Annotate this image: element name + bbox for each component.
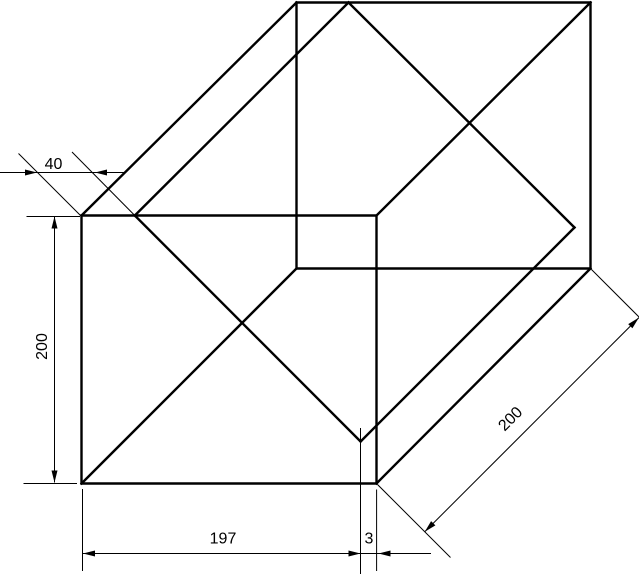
svg-text:197: 197 xyxy=(210,531,237,548)
svg-text:200: 200 xyxy=(34,333,51,360)
svg-text:3: 3 xyxy=(365,531,374,548)
svg-text:40: 40 xyxy=(45,156,63,173)
